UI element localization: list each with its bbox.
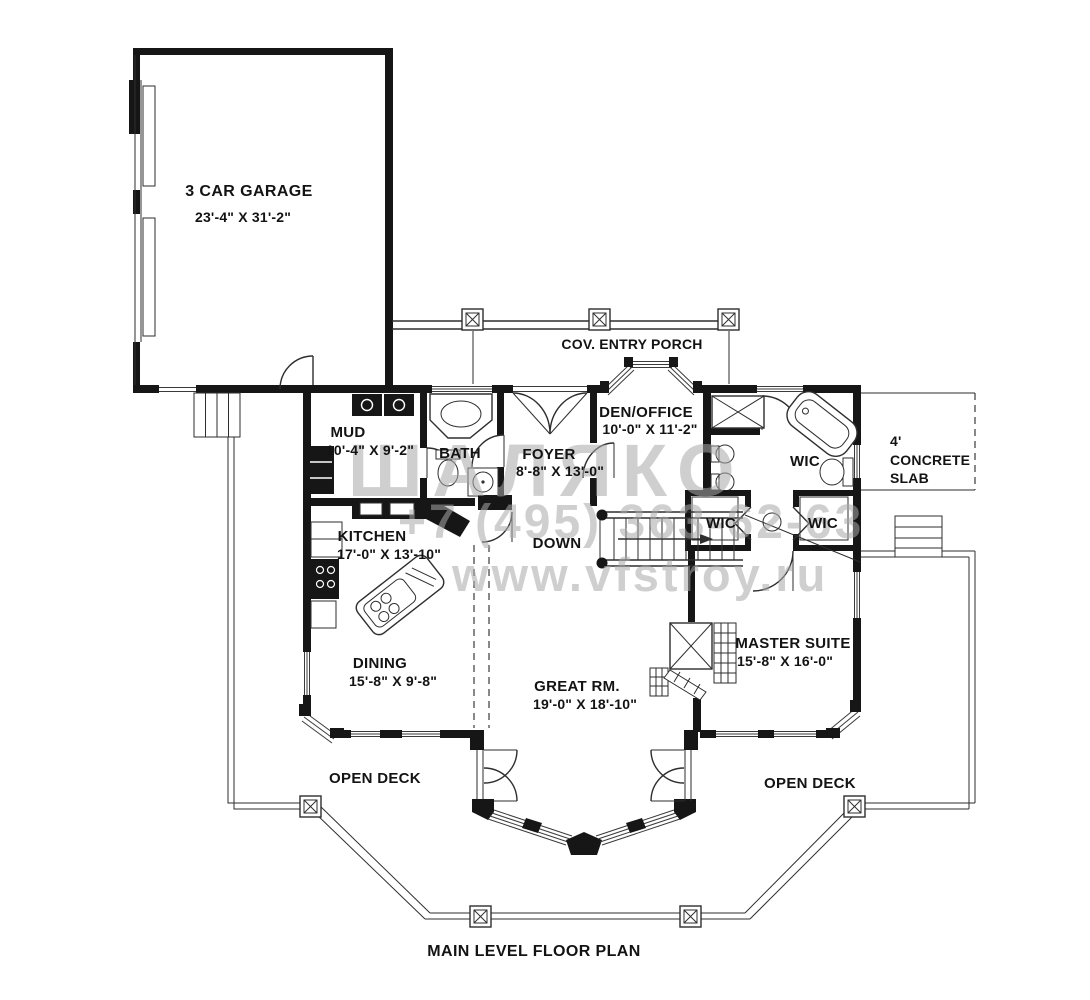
dining-label: DINING xyxy=(353,655,407,672)
stairs-label: DOWN xyxy=(533,535,582,552)
master-dims: 15'-8" X 16'-0" xyxy=(737,653,833,669)
french-door-left xyxy=(484,750,517,801)
french-door-right xyxy=(651,750,684,801)
floor-plan-drawing: ШАЛЯКО +7 (495) 363-62-63 www.vfstroy.ru… xyxy=(0,0,1090,1000)
fireplace-unit xyxy=(650,623,736,700)
deck-post xyxy=(844,796,865,817)
dining-dims: 15'-8" X 9'-8" xyxy=(349,673,437,689)
bath-label: BATH xyxy=(439,445,481,462)
toilet-bowl xyxy=(820,459,844,485)
porch-post xyxy=(462,309,483,330)
porch-label: COV. ENTRY PORCH xyxy=(561,336,702,352)
wic-left-label: WIC xyxy=(706,515,736,532)
dining-bay xyxy=(299,704,470,743)
porch-post xyxy=(718,309,739,330)
slab-label-2: CONCRETE xyxy=(890,452,970,468)
foyer-label: FOYER xyxy=(522,446,575,463)
great-room-prow xyxy=(470,730,698,855)
range xyxy=(311,559,339,599)
foyer-dims: 8'-8" X 13'-0" xyxy=(516,463,604,479)
garage-label: 3 CAR GARAGE xyxy=(185,183,312,200)
garage-door-panel xyxy=(143,218,155,336)
garage-dims: 23'-4" X 31'-2" xyxy=(195,209,291,225)
washer xyxy=(352,394,382,416)
watermark-phone: +7 (495) 363-62-63 xyxy=(398,496,864,549)
wic-right-label: WIC xyxy=(808,515,838,532)
garage-steps xyxy=(194,393,240,437)
kitchen-label: KITCHEN xyxy=(338,528,407,545)
dryer xyxy=(384,394,414,416)
den-dims: 10'-0" X 11'-2" xyxy=(602,421,697,437)
den-label: DEN/OFFICE xyxy=(599,404,693,421)
entry-double-doors xyxy=(513,393,587,434)
den-bay-window xyxy=(600,357,702,395)
plan-title: MAIN LEVEL FLOOR PLAN xyxy=(427,943,640,960)
mud-label: MUD xyxy=(330,424,365,441)
deck-post xyxy=(680,906,701,927)
master-tub xyxy=(781,386,862,462)
wic-upper-label: WIC xyxy=(790,453,820,470)
master-label: MASTER SUITE xyxy=(735,635,850,652)
great-room-label: GREAT RM. xyxy=(534,678,620,695)
deck-left-label: OPEN DECK xyxy=(329,770,421,787)
deck-steps xyxy=(895,516,942,557)
porch-post xyxy=(589,309,610,330)
slab-label-1: 4' xyxy=(890,433,902,449)
great-room-dims: 19'-0" X 18'-10" xyxy=(533,696,637,712)
kitchen-island xyxy=(353,552,447,638)
kitchen-dims: 17'-0" X 13'-10" xyxy=(337,546,441,562)
deck-post xyxy=(300,796,321,817)
deck-post xyxy=(470,906,491,927)
master-bay xyxy=(700,700,861,739)
dishwasher xyxy=(311,601,336,628)
garage-door-panel xyxy=(143,86,155,186)
garage-door-swing xyxy=(280,356,313,389)
mud-dims: 10'-4" X 9'-2" xyxy=(326,442,414,458)
floor-plan-page: ШАЛЯКО +7 (495) 363-62-63 www.vfstroy.ru… xyxy=(0,0,1090,1000)
watermark-site: www.vfstroy.ru xyxy=(451,548,828,601)
deck-right-label: OPEN DECK xyxy=(764,775,856,792)
slab-label-3: SLAB xyxy=(890,470,929,486)
